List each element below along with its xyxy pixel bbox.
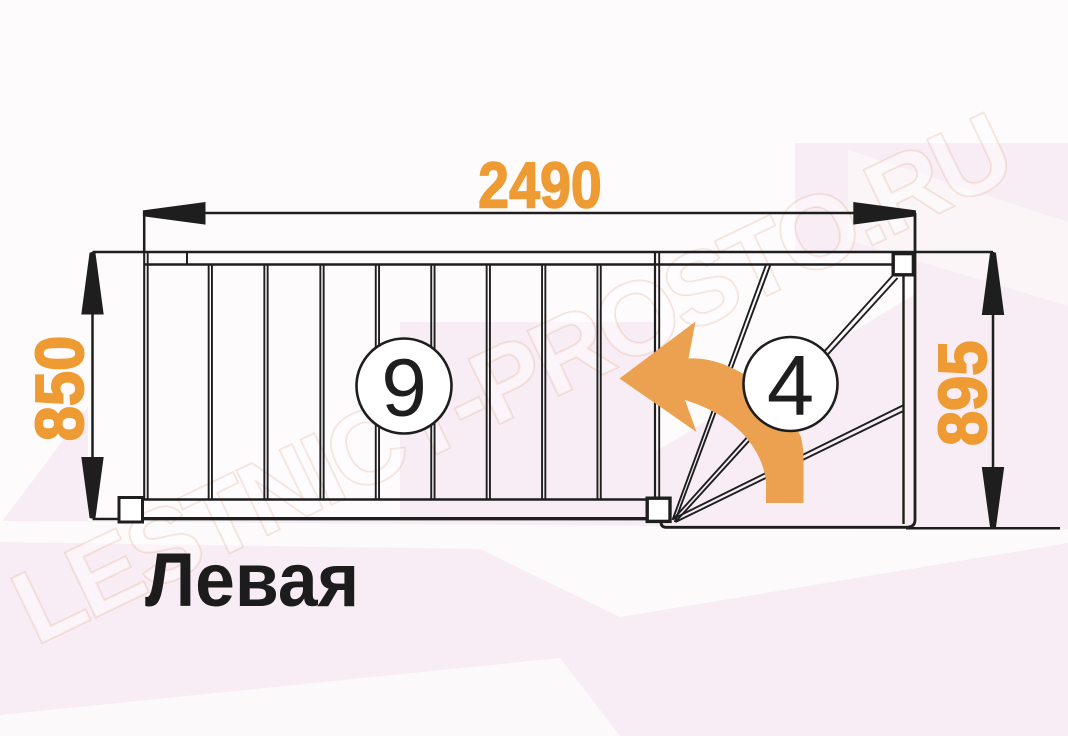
svg-text:4: 4 (767, 339, 814, 434)
svg-text:9: 9 (381, 343, 427, 434)
svg-text:895: 895 (925, 341, 1001, 447)
svg-text:Левая: Левая (145, 537, 359, 623)
svg-text:850: 850 (22, 336, 98, 442)
svg-text:2490: 2490 (478, 148, 602, 221)
